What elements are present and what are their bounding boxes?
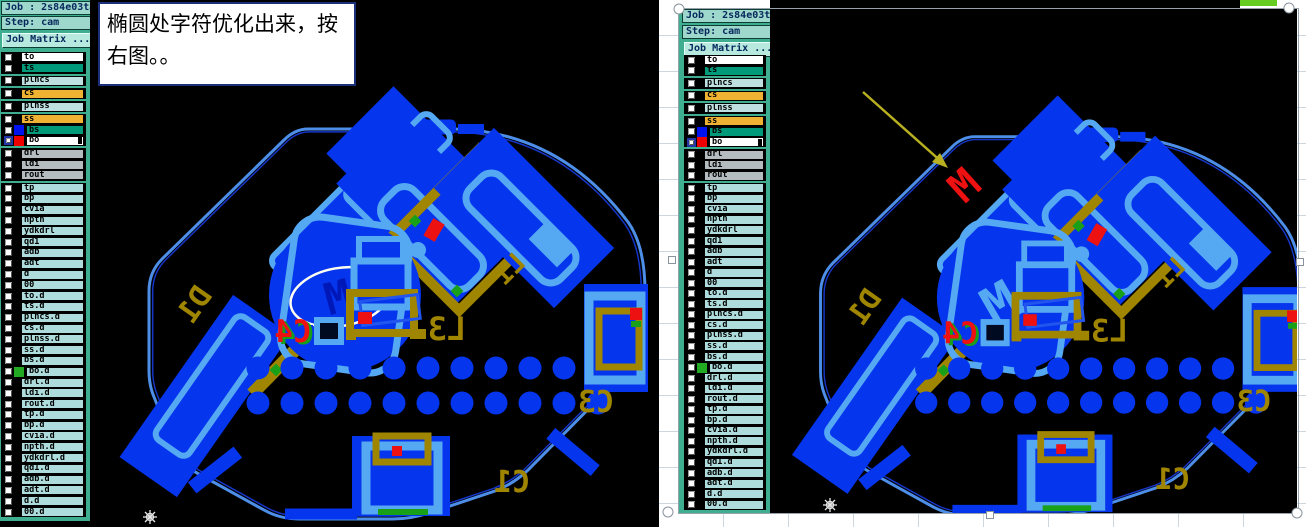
selection-handle-bottom-left[interactable] <box>663 507 674 518</box>
layer-row-plnss[interactable]: plnss <box>1 101 86 112</box>
layer-checkbox[interactable] <box>4 76 13 85</box>
job-title: Job : 2s84e03ta0 <box>1 1 96 15</box>
layer-checkbox[interactable] <box>4 367 13 376</box>
layer-checkbox[interactable] <box>687 479 696 488</box>
selection-handle-mid-left[interactable] <box>668 256 676 264</box>
layer-row-ydkdrl[interactable]: ydkdrl <box>684 225 766 236</box>
layer-checkbox[interactable] <box>687 215 696 224</box>
layer-name[interactable]: npth.d <box>704 436 764 446</box>
layer-name[interactable]: to.d <box>704 289 764 299</box>
layer-checkbox[interactable] <box>4 184 13 193</box>
layer-row-bs[interactable]: bs <box>684 126 766 137</box>
layer-checkbox[interactable] <box>4 149 13 158</box>
selection-handle-top-right[interactable] <box>1284 3 1295 14</box>
layer-name[interactable]: ldi <box>21 160 84 170</box>
layer-checkbox[interactable] <box>4 64 13 73</box>
layer-name[interactable]: ldi <box>704 160 764 170</box>
right-board-drawing: D1L1ML3C4C4C3C1M <box>770 8 1297 514</box>
layer-checkbox[interactable] <box>4 432 13 441</box>
layer-notch <box>758 139 762 146</box>
layer-checkbox[interactable] <box>4 115 13 124</box>
layer-name[interactable]: plnss <box>704 103 764 113</box>
layer-color-chip[interactable] <box>14 136 24 146</box>
layer-checkbox[interactable] <box>4 281 13 290</box>
annotation-note: 椭圆处字符优化出来，按右图。。 <box>98 2 356 86</box>
layer-checkbox[interactable] <box>687 395 696 404</box>
layer-name[interactable]: drl <box>704 150 764 160</box>
layer-name[interactable]: cvia <box>704 204 764 214</box>
layer-checkbox[interactable] <box>4 421 13 430</box>
layer-name[interactable]: to <box>21 52 84 62</box>
layer-name[interactable]: cs.d <box>21 324 84 334</box>
layer-row-rout.d[interactable]: rout.d <box>1 399 86 410</box>
layer-row-ydkdrl[interactable]: ydkdrl <box>1 226 86 237</box>
layer-name[interactable]: bs.d <box>704 352 764 362</box>
selection-handle-bottom-right[interactable] <box>1292 508 1303 519</box>
layer-checkbox[interactable] <box>687 194 696 203</box>
layer-name[interactable]: ss <box>21 114 84 124</box>
layer-name[interactable]: ydkdrl.d <box>21 453 84 463</box>
layer-checkbox[interactable] <box>4 389 13 398</box>
layer-checkbox[interactable] <box>4 313 13 322</box>
layer-checkbox[interactable] <box>4 378 13 387</box>
layer-color-chip[interactable] <box>697 127 707 137</box>
layer-checkbox[interactable] <box>4 410 13 419</box>
layer-row-rout[interactable]: rout <box>1 170 86 181</box>
layer-checkbox[interactable] <box>4 136 13 145</box>
layer-name[interactable]: drl.d <box>704 373 764 383</box>
layer-checkbox[interactable] <box>687 490 696 499</box>
layer-name[interactable]: 00.d <box>704 500 764 510</box>
layer-row-bo.d[interactable]: bo.d <box>684 362 766 373</box>
layer-row-rout[interactable]: rout <box>684 170 766 181</box>
layer-row-npth[interactable]: npth <box>1 215 86 226</box>
layer-row-to.d[interactable]: to.d <box>1 291 86 302</box>
layer-row-tp.d[interactable]: tp.d <box>1 410 86 421</box>
layer-name[interactable]: d <box>704 268 764 278</box>
layer-name[interactable]: plnss <box>21 102 84 112</box>
layer-row-ss[interactable]: ss <box>1 114 86 125</box>
layer-name[interactable]: tp.d <box>704 405 764 415</box>
excel-bottom-strip <box>659 514 1306 527</box>
layer-row-cvia[interactable]: cvia <box>1 204 86 215</box>
layer-checkbox[interactable] <box>687 127 696 136</box>
layer-checkbox[interactable] <box>687 279 696 288</box>
layer-row-cs[interactable]: cs <box>1 88 86 99</box>
annotation-arrow <box>863 92 948 168</box>
layer-row-ss.d[interactable]: ss.d <box>684 341 766 352</box>
layer-name[interactable]: cs.d <box>704 320 764 330</box>
layer-checkbox[interactable] <box>4 238 13 247</box>
datum-star-icon <box>143 510 157 524</box>
layer-name[interactable]: npth <box>704 215 764 225</box>
layer-checkbox[interactable] <box>687 150 696 159</box>
layer-row-ts.d[interactable]: ts.d <box>1 302 86 313</box>
layer-name[interactable]: rout.d <box>21 399 84 409</box>
layer-checkbox[interactable] <box>4 508 13 517</box>
layer-row-ss.d[interactable]: ss.d <box>1 345 86 356</box>
layer-row-to.d[interactable]: to.d <box>684 288 766 299</box>
layer-row-d[interactable]: d <box>1 269 86 280</box>
layer-name[interactable]: ydkdrl <box>21 226 84 236</box>
layer-name[interactable]: qd1 <box>21 237 84 247</box>
layer-row-to[interactable]: to <box>1 52 86 63</box>
layer-row-qd1.d[interactable]: qd1.d <box>1 463 86 474</box>
layer-checkbox[interactable] <box>687 458 696 467</box>
layer-checkbox[interactable] <box>687 437 696 446</box>
layer-checkbox[interactable] <box>687 321 696 330</box>
layer-name[interactable]: adt <box>21 259 84 269</box>
layer-name[interactable]: adb.d <box>21 475 84 485</box>
layer-row-cvia.d[interactable]: cvia.d <box>684 426 766 437</box>
layer-row-ydkdrl.d[interactable]: ydkdrl.d <box>684 447 766 458</box>
layer-checkbox[interactable] <box>4 454 13 463</box>
layer-name[interactable]: drl.d <box>21 378 84 388</box>
layer-name[interactable]: npth <box>21 216 84 226</box>
layer-row-tp.d[interactable]: tp.d <box>684 405 766 416</box>
layer-name[interactable]: bo.d <box>26 367 84 377</box>
layer-name[interactable]: drl <box>21 149 84 159</box>
layer-checkbox[interactable] <box>4 292 13 301</box>
layer-name[interactable]: ydkdrl.d <box>704 447 764 457</box>
layer-row-bs.d[interactable]: bs.d <box>684 352 766 363</box>
layer-row-to[interactable]: to <box>684 55 766 66</box>
layer-name[interactable]: rout <box>704 171 764 181</box>
layer-color-chip[interactable] <box>14 367 24 377</box>
board-label-c4: C4 <box>942 316 978 351</box>
layer-row-adb[interactable]: adb <box>684 246 766 257</box>
layer-name[interactable]: bp <box>704 194 764 204</box>
layer-checkbox[interactable] <box>687 416 696 425</box>
layer-checkbox[interactable] <box>4 464 13 473</box>
layer-name[interactable]: ss.d <box>21 345 84 355</box>
layer-name[interactable]: bp <box>21 194 84 204</box>
layer-name[interactable]: rout.d <box>704 394 764 404</box>
layer-checkbox[interactable] <box>687 66 696 75</box>
layer-row-plncs.d[interactable]: plncs.d <box>684 310 766 321</box>
layer-checkbox[interactable] <box>687 363 696 372</box>
screenshot-root: Job : 2s84e03ta0 Step: cam Job Matrix ..… <box>0 0 1306 527</box>
layer-checkbox[interactable] <box>687 384 696 393</box>
layer-name[interactable]: cs <box>704 91 764 101</box>
layer-name[interactable]: plncs <box>704 78 764 88</box>
layer-row-qd1.d[interactable]: qd1.d <box>684 457 766 468</box>
layer-checkbox[interactable] <box>687 426 696 435</box>
layer-name[interactable]: bp.d <box>704 415 764 425</box>
layer-name[interactable]: ts <box>21 63 84 73</box>
layer-checkbox[interactable] <box>687 117 696 126</box>
layer-name[interactable]: to.d <box>21 291 84 301</box>
layer-row-rout.d[interactable]: rout.d <box>684 394 766 405</box>
layer-checkbox[interactable] <box>4 335 13 344</box>
layer-name[interactable]: adt.d <box>704 479 764 489</box>
layer-row-bp[interactable]: bp <box>684 194 766 205</box>
layer-checkbox[interactable] <box>687 91 696 100</box>
layer-row-bp.d[interactable]: bp.d <box>684 415 766 426</box>
layer-checkbox[interactable] <box>687 56 696 65</box>
layer-row-plnss[interactable]: plnss <box>684 103 766 114</box>
layer-name[interactable]: adt.d <box>21 485 84 495</box>
layer-checkbox[interactable] <box>4 356 13 365</box>
layer-checkbox[interactable] <box>4 216 13 225</box>
layer-name[interactable]: ldi.d <box>21 388 84 398</box>
layer-name[interactable]: ss.d <box>704 341 764 351</box>
layer-name[interactable]: bs.d <box>21 356 84 366</box>
layer-checkbox[interactable] <box>687 171 696 180</box>
layer-name[interactable]: rout <box>21 170 84 180</box>
layer-name[interactable]: to <box>704 55 764 65</box>
layer-checkbox[interactable] <box>687 447 696 456</box>
layer-row-ts[interactable]: ts <box>1 63 86 74</box>
layer-name[interactable]: bs <box>26 125 84 135</box>
layer-checkbox[interactable] <box>4 53 13 62</box>
layer-row-ss[interactable]: ss <box>684 116 766 127</box>
layer-checkbox[interactable] <box>687 79 696 88</box>
layer-name[interactable]: d.d <box>704 489 764 499</box>
layer-row-adt[interactable]: adt <box>684 257 766 268</box>
layer-checkbox[interactable] <box>4 160 13 169</box>
layer-row-bs.d[interactable]: bs.d <box>1 356 86 367</box>
layer-checkbox[interactable] <box>4 259 13 268</box>
layer-row-npth.d[interactable]: npth.d <box>1 442 86 453</box>
layer-row-d[interactable]: d <box>684 267 766 278</box>
layer-notch <box>78 137 82 144</box>
layer-checkbox[interactable] <box>687 247 696 256</box>
board-label-c3: C3 <box>578 385 614 420</box>
layer-row-bp[interactable]: bp <box>1 194 86 205</box>
layer-name[interactable]: ts <box>704 66 764 76</box>
layer-row-tp[interactable]: tp <box>1 183 86 194</box>
layer-row-adt[interactable]: adt <box>1 258 86 269</box>
board-label-c4: C4 <box>274 314 311 350</box>
layer-checkbox[interactable] <box>687 268 696 277</box>
layer-row-bo[interactable]: bo <box>684 137 766 148</box>
layer-name[interactable]: d.d <box>21 496 84 506</box>
layer-row-cvia[interactable]: cvia <box>684 204 766 215</box>
layer-checkbox[interactable] <box>687 353 696 362</box>
layer-row-npth.d[interactable]: npth.d <box>684 436 766 447</box>
layer-checkbox[interactable] <box>687 374 696 383</box>
layer-checkbox[interactable] <box>4 497 13 506</box>
layer-checkbox[interactable] <box>687 138 696 147</box>
layer-checkbox[interactable] <box>4 248 13 257</box>
layer-row-drl.d[interactable]: drl.d <box>1 377 86 388</box>
layer-name[interactable]: bs <box>709 127 764 137</box>
layer-checkbox[interactable] <box>4 346 13 355</box>
layer-name[interactable]: bo.d <box>709 363 764 373</box>
layer-name[interactable]: 00 <box>704 278 764 288</box>
layer-name[interactable]: plncs.d <box>21 313 84 323</box>
layer-name[interactable]: 00 <box>21 280 84 290</box>
layer-name[interactable]: plnss.d <box>21 334 84 344</box>
layer-row-d.d[interactable]: d.d <box>1 496 86 507</box>
layer-row-plncs[interactable]: plncs <box>684 78 766 89</box>
layer-checkbox[interactable] <box>4 171 13 180</box>
layer-color-chip[interactable] <box>697 363 707 373</box>
layer-row-ldi[interactable]: ldi <box>684 160 766 171</box>
layer-color-chip[interactable] <box>697 137 707 147</box>
selection-handle-top-left[interactable] <box>674 4 685 15</box>
layer-row-drl[interactable]: drl <box>684 149 766 160</box>
layer-row-bo.d[interactable]: bo.d <box>1 366 86 377</box>
layer-name[interactable]: bp.d <box>21 421 84 431</box>
layer-name[interactable]: tp <box>704 183 764 193</box>
layer-row-plnss.d[interactable]: plnss.d <box>684 331 766 342</box>
layer-checkbox[interactable] <box>687 342 696 351</box>
layer-name[interactable]: npth.d <box>21 442 84 452</box>
layer-checkbox[interactable] <box>687 405 696 414</box>
step-title: Step: cam <box>1 16 96 30</box>
layer-list: totsplncscsplnssssbsbodrlldirouttpbpcvia… <box>684 55 766 510</box>
layer-name[interactable]: cvia.d <box>21 431 84 441</box>
board-label-l3: L3 <box>1091 313 1128 349</box>
layer-name[interactable]: plnss.d <box>704 331 764 341</box>
layer-name[interactable]: ss <box>704 116 764 126</box>
layer-row-qd1[interactable]: qd1 <box>1 237 86 248</box>
layer-name[interactable]: cs <box>21 89 84 99</box>
layer-checkbox[interactable] <box>4 89 13 98</box>
board-label-d1: D1 <box>171 280 220 330</box>
background-window-sliver <box>1240 0 1277 6</box>
layer-name[interactable]: plncs.d <box>704 310 764 320</box>
layer-name[interactable]: ts.d <box>21 302 84 312</box>
layer-row-plncs[interactable]: plncs <box>1 76 86 87</box>
layer-row-ldi[interactable]: ldi <box>1 159 86 170</box>
layer-name[interactable]: bo <box>26 136 84 146</box>
layer-row-ldi.d[interactable]: ldi.d <box>1 388 86 399</box>
layer-name[interactable]: adt <box>704 257 764 267</box>
layer-checkbox[interactable] <box>4 302 13 311</box>
layer-row-cvia.d[interactable]: cvia.d <box>1 431 86 442</box>
layer-row-ts.d[interactable]: ts.d <box>684 299 766 310</box>
layer-row-adt.d[interactable]: adt.d <box>1 485 86 496</box>
board-label-d1: D1 <box>841 282 889 330</box>
layer-name[interactable]: qd1.d <box>21 464 84 474</box>
layer-name[interactable]: ts.d <box>704 299 764 309</box>
layer-checkbox[interactable] <box>4 475 13 484</box>
layer-checkbox[interactable] <box>687 104 696 113</box>
layer-row-qd1[interactable]: qd1 <box>684 236 766 247</box>
layer-name[interactable]: qd1 <box>704 236 764 246</box>
layer-checkbox[interactable] <box>687 300 696 309</box>
layer-checkbox[interactable] <box>687 258 696 267</box>
layer-checkbox[interactable] <box>687 469 696 478</box>
layer-name[interactable]: adb <box>704 247 764 257</box>
layer-row-tp[interactable]: tp <box>684 183 766 194</box>
layer-checkbox[interactable] <box>4 227 13 236</box>
layer-checkbox[interactable] <box>4 400 13 409</box>
layer-checkbox[interactable] <box>687 310 696 319</box>
layer-name[interactable]: 00.d <box>21 507 84 517</box>
left-panel-foot <box>0 521 90 527</box>
layer-checkbox[interactable] <box>4 443 13 452</box>
selection-handle-mid-bottom[interactable] <box>986 511 994 519</box>
layer-row-plncs.d[interactable]: plncs.d <box>1 312 86 323</box>
layer-row-npth[interactable]: npth <box>684 215 766 226</box>
board-label-l3: L3 <box>428 310 467 348</box>
layer-row-bo[interactable]: bo <box>1 136 86 147</box>
layer-row-drl.d[interactable]: drl.d <box>684 373 766 384</box>
layer-list: totsplncscsplnssssbsbodrlldirouttpbpcvia… <box>1 52 86 517</box>
layer-row-adb[interactable]: adb <box>1 248 86 259</box>
layer-checkbox[interactable] <box>687 184 696 193</box>
layer-checkbox[interactable] <box>4 486 13 495</box>
layer-checkbox[interactable] <box>4 270 13 279</box>
layer-row-plnss.d[interactable]: plnss.d <box>1 334 86 345</box>
layer-checkbox[interactable] <box>687 500 696 509</box>
layer-checkbox[interactable] <box>687 237 696 246</box>
layer-checkbox[interactable] <box>4 324 13 333</box>
layer-row-00.d[interactable]: 00.d <box>684 499 766 510</box>
layer-row-ts[interactable]: ts <box>684 66 766 77</box>
layer-name[interactable]: cvia <box>21 205 84 215</box>
selection-handle-mid-right[interactable] <box>1296 258 1304 266</box>
board-label-c3: C3 <box>1237 384 1272 418</box>
layer-name[interactable]: tp.d <box>21 410 84 420</box>
layer-name[interactable]: adb.d <box>704 468 764 478</box>
top-black-strip <box>770 0 1240 8</box>
layer-checkbox[interactable] <box>4 205 13 214</box>
layer-row-cs.d[interactable]: cs.d <box>684 320 766 331</box>
layer-row-00.d[interactable]: 00.d <box>1 507 86 518</box>
layer-name[interactable]: ydkdrl <box>704 225 764 235</box>
right-cam-canvas[interactable]: D1L1ML3C4C4C3C1M <box>770 8 1297 514</box>
layer-row-cs[interactable]: cs <box>684 91 766 102</box>
layer-row-cs.d[interactable]: cs.d <box>1 323 86 334</box>
layer-row-00[interactable]: 00 <box>684 278 766 289</box>
layer-checkbox[interactable] <box>687 205 696 214</box>
layer-row-00[interactable]: 00 <box>1 280 86 291</box>
layer-name[interactable]: ldi.d <box>704 384 764 394</box>
layer-row-bs[interactable]: bs <box>1 125 86 136</box>
layer-row-adt.d[interactable]: adt.d <box>684 478 766 489</box>
board-label-c1: C1 <box>494 465 530 500</box>
layer-checkbox[interactable] <box>4 102 13 111</box>
pcb-board: D1L1ML3C4C4C3C1 <box>792 95 1297 514</box>
left-cam-sidebar: Job : 2s84e03ta0 Step: cam Job Matrix ..… <box>0 0 90 521</box>
datum-star-icon <box>823 498 837 512</box>
layer-checkbox[interactable] <box>4 126 13 135</box>
layer-row-adb.d[interactable]: adb.d <box>1 474 86 485</box>
layer-checkbox[interactable] <box>4 194 13 203</box>
layer-name[interactable]: plncs <box>21 76 84 86</box>
layer-row-d.d[interactable]: d.d <box>684 489 766 500</box>
layer-checkbox[interactable] <box>687 289 696 298</box>
layer-checkbox[interactable] <box>687 331 696 340</box>
layer-row-adb.d[interactable]: adb.d <box>684 468 766 479</box>
board-label-c1: C1 <box>1155 462 1190 496</box>
layer-row-drl[interactable]: drl <box>1 148 86 159</box>
layer-checkbox[interactable] <box>687 161 696 170</box>
pcb-board: D1L1ML3C4C4C3C1 <box>120 86 648 519</box>
layer-checkbox[interactable] <box>687 226 696 235</box>
layer-row-ldi.d[interactable]: ldi.d <box>684 383 766 394</box>
layer-row-bp.d[interactable]: bp.d <box>1 420 86 431</box>
layer-color-chip[interactable] <box>14 125 24 135</box>
layer-name[interactable]: bo <box>709 137 764 147</box>
layer-name[interactable]: d <box>21 270 84 280</box>
layer-name[interactable]: adb <box>21 248 84 258</box>
layer-name[interactable]: qd1.d <box>704 458 764 468</box>
job-matrix-button[interactable]: Job Matrix ... <box>2 33 95 48</box>
layer-row-ydkdrl.d[interactable]: ydkdrl.d <box>1 453 86 464</box>
layer-name[interactable]: cvia.d <box>704 426 764 436</box>
layer-name[interactable]: tp <box>21 183 84 193</box>
